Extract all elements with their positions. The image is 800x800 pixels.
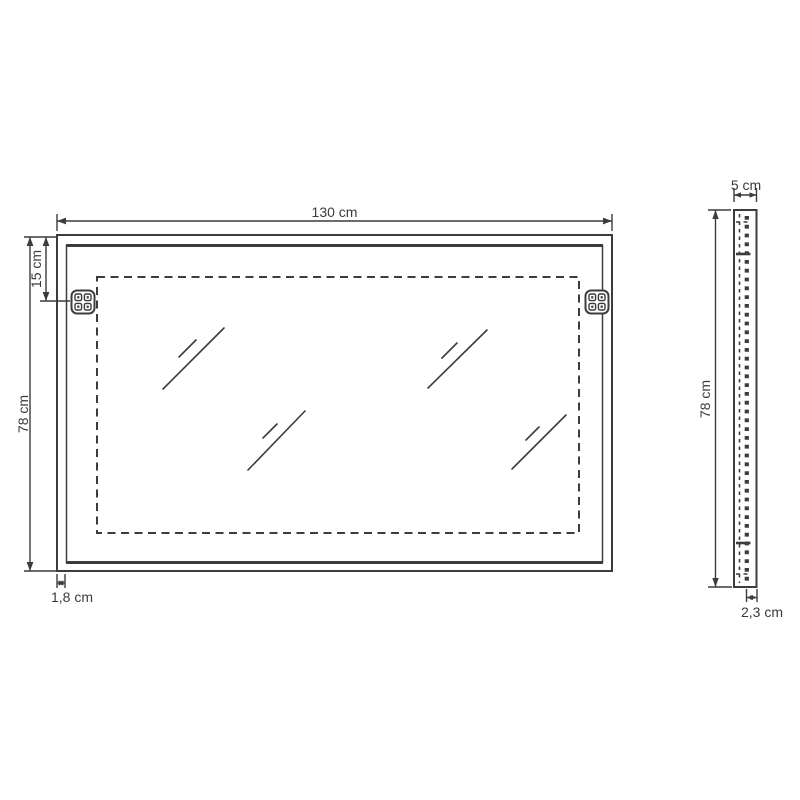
side-outer-profile bbox=[734, 210, 757, 587]
technical-drawing bbox=[0, 0, 800, 800]
dim-bracket-offset bbox=[40, 237, 70, 301]
mounting-bracket-icon bbox=[72, 291, 95, 314]
side-depth-label: 5 cm bbox=[731, 177, 761, 193]
front-height-label: 78 cm bbox=[15, 395, 31, 433]
mirror-shine-icon bbox=[163, 328, 224, 389]
mounting-bracket-icon bbox=[586, 291, 609, 314]
mirror-shine-icon bbox=[248, 411, 305, 470]
front-width-label: 130 cm bbox=[57, 204, 612, 220]
back-panel-dashed-outline bbox=[97, 277, 579, 533]
frame-depth-label: 1,8 cm bbox=[51, 589, 93, 605]
side-height-label: 78 cm bbox=[697, 380, 713, 418]
mirror-shine-icon bbox=[512, 415, 566, 469]
bracket-offset-label: 15 cm bbox=[28, 250, 44, 288]
mirror-shine-icon bbox=[428, 330, 487, 388]
back-offset-label: 2,3 cm bbox=[741, 604, 783, 620]
side-view bbox=[734, 210, 757, 587]
front-outer-frame bbox=[57, 235, 612, 571]
dim-side-back-offset bbox=[747, 589, 758, 602]
mirror-dimension-diagram: 130 cm 78 cm 15 cm 1,8 cm 5 cm 78 cm 2,3… bbox=[0, 0, 800, 800]
front-view bbox=[57, 235, 612, 571]
dim-frame-depth bbox=[57, 574, 65, 588]
